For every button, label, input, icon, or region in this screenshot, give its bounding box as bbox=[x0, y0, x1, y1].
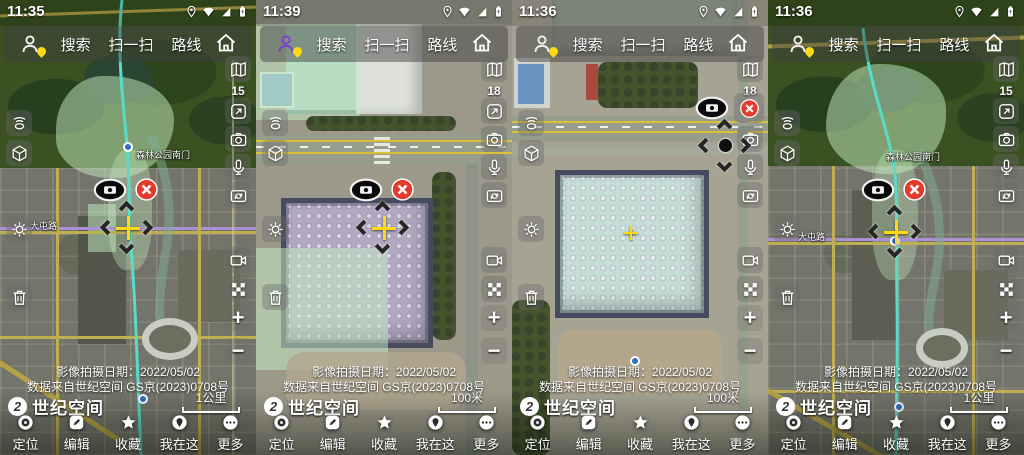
camera-oval-icon bbox=[694, 95, 730, 121]
road-label: 大屯路 bbox=[798, 230, 825, 243]
mic-icon bbox=[997, 158, 1016, 177]
zoom-in-button[interactable]: + bbox=[993, 305, 1019, 331]
battery-icon bbox=[236, 5, 249, 18]
route-button[interactable]: 路线 bbox=[159, 34, 214, 55]
camera-switch-icon bbox=[229, 186, 248, 205]
four-screenshot-strip: 森林公园南门 大屯路 11:35 搜索 扫一扫 路线 15 bbox=[0, 0, 1024, 455]
locate-target-icon bbox=[528, 413, 547, 432]
camera-switch-icon bbox=[741, 186, 760, 205]
nav-here[interactable]: 我在这 bbox=[410, 411, 461, 455]
zoom-level-indicator: 15 bbox=[225, 84, 251, 98]
mic-icon bbox=[229, 158, 248, 177]
screenshot-panel-2: 11:39 搜索 扫一扫 路线 18 + − bbox=[256, 0, 512, 455]
screenshot-panel-3: 11:36 搜索 扫一扫 路线 18 + − bbox=[512, 0, 768, 455]
close-x-icon bbox=[902, 177, 927, 202]
checker-grid-icon bbox=[485, 280, 504, 299]
battery-icon bbox=[1004, 5, 1017, 18]
settings-gear-icon bbox=[10, 220, 29, 239]
search-bar: 搜索 扫一扫 路线 bbox=[260, 26, 508, 62]
view-3d-button[interactable] bbox=[262, 140, 288, 166]
zoom-out-button[interactable]: − bbox=[993, 338, 1019, 364]
status-bar: 11:35 bbox=[0, 0, 256, 22]
close-x-icon bbox=[739, 98, 760, 119]
scan-button[interactable]: 扫一扫 bbox=[871, 34, 926, 55]
search-bar: 搜索 扫一扫 路线 bbox=[516, 26, 764, 62]
close-x-icon bbox=[134, 177, 159, 202]
location-pin-icon bbox=[185, 5, 198, 18]
fullscreen-button[interactable] bbox=[993, 98, 1019, 124]
scale-label: 100米 bbox=[451, 391, 483, 405]
location-pin-icon bbox=[953, 5, 966, 18]
search-button[interactable]: 搜索 bbox=[816, 34, 871, 55]
nav-edit[interactable]: 编辑 bbox=[51, 411, 102, 455]
pencil-icon bbox=[67, 413, 86, 432]
camera-switch-button[interactable] bbox=[737, 182, 763, 208]
map-layers-icon bbox=[741, 60, 760, 79]
camera-switch-icon bbox=[485, 186, 504, 205]
map-layers-button[interactable] bbox=[993, 56, 1019, 82]
zoom-in-button[interactable]: + bbox=[737, 305, 763, 331]
location-pin-icon bbox=[170, 413, 189, 432]
close-x-icon bbox=[390, 177, 415, 202]
capture-date: 影像拍摄日期：2022/05/02 bbox=[768, 365, 1024, 380]
nav-edit[interactable]: 编辑 bbox=[819, 411, 870, 455]
map-layers-button[interactable] bbox=[737, 56, 763, 82]
settings-button[interactable] bbox=[774, 216, 800, 242]
camera-oval-icon bbox=[860, 177, 896, 203]
hotspot-button[interactable] bbox=[774, 110, 800, 136]
video-camera-icon bbox=[997, 251, 1016, 270]
checker-grid-icon bbox=[741, 280, 760, 299]
location-pin-icon bbox=[441, 5, 454, 18]
settings-button[interactable] bbox=[518, 216, 544, 242]
clock: 11:39 bbox=[263, 3, 301, 20]
camera-button[interactable] bbox=[225, 126, 251, 152]
signal-icon bbox=[475, 5, 488, 18]
view-3d-button[interactable] bbox=[774, 140, 800, 166]
delete-button[interactable] bbox=[262, 284, 288, 310]
video-button[interactable] bbox=[737, 247, 763, 273]
locate-target-icon bbox=[16, 413, 35, 432]
mic-button[interactable] bbox=[737, 154, 763, 180]
clock: 11:35 bbox=[7, 3, 45, 20]
search-button[interactable]: 搜索 bbox=[304, 34, 359, 55]
signal-icon bbox=[731, 5, 744, 18]
route-button[interactable]: 路线 bbox=[671, 34, 726, 55]
yellow-crosshair bbox=[884, 220, 908, 244]
video-button[interactable] bbox=[225, 247, 251, 273]
map-scale: 100米 bbox=[694, 389, 752, 413]
settings-gear-icon bbox=[266, 220, 285, 239]
fullscreen-icon bbox=[229, 102, 248, 121]
metro-station-dot bbox=[123, 142, 133, 152]
scan-button[interactable]: 扫一扫 bbox=[103, 34, 158, 55]
camera-switch-button[interactable] bbox=[225, 182, 251, 208]
zoom-out-button[interactable]: − bbox=[737, 338, 763, 364]
zoom-in-button[interactable]: + bbox=[481, 305, 507, 331]
scale-label: 100米 bbox=[707, 391, 739, 405]
mic-button[interactable] bbox=[225, 154, 251, 180]
nav-favorite[interactable]: 收藏 bbox=[102, 411, 153, 455]
home-icon[interactable] bbox=[726, 31, 752, 57]
location-pin-icon bbox=[938, 413, 957, 432]
yellow-crosshair bbox=[372, 216, 396, 240]
map-layers-icon bbox=[229, 60, 248, 79]
route-button[interactable]: 路线 bbox=[927, 34, 982, 55]
camera-oval-icon bbox=[92, 177, 128, 203]
scale-label: 1公里 bbox=[196, 391, 227, 405]
nav-here[interactable]: 我在这 bbox=[922, 411, 973, 455]
wifi-icon bbox=[202, 5, 215, 18]
clock: 11:36 bbox=[775, 3, 813, 20]
settings-button[interactable] bbox=[262, 216, 288, 242]
hotspot-button[interactable] bbox=[6, 110, 32, 136]
battery-icon bbox=[748, 5, 761, 18]
nav-edit[interactable]: 编辑 bbox=[307, 411, 358, 455]
more-dots-icon bbox=[733, 413, 752, 432]
cube-3d-icon bbox=[10, 144, 29, 163]
mic-button[interactable] bbox=[481, 154, 507, 180]
nav-locate[interactable]: 定位 bbox=[0, 411, 51, 455]
pan-center-dot bbox=[719, 139, 732, 152]
map-center-mini-crosshair bbox=[624, 226, 638, 240]
search-button[interactable]: 搜索 bbox=[560, 34, 615, 55]
star-icon bbox=[887, 413, 906, 432]
pencil-icon bbox=[579, 413, 598, 432]
camera-switch-button[interactable] bbox=[481, 182, 507, 208]
close-button[interactable] bbox=[390, 177, 415, 202]
video-button[interactable] bbox=[993, 247, 1019, 273]
station-label: 森林公园南门 bbox=[136, 148, 190, 161]
profile-icon[interactable] bbox=[274, 32, 304, 56]
mic-icon bbox=[741, 158, 760, 177]
wifi-icon bbox=[970, 5, 983, 18]
pencil-icon bbox=[835, 413, 854, 432]
cube-3d-icon bbox=[778, 144, 797, 163]
camera-switch-button[interactable] bbox=[993, 182, 1019, 208]
hotspot-icon bbox=[10, 114, 29, 133]
location-pin-icon bbox=[697, 5, 710, 18]
capture-date: 影像拍摄日期：2022/05/02 bbox=[512, 365, 768, 380]
grid-button[interactable] bbox=[225, 276, 251, 302]
yellow-crosshair bbox=[116, 216, 140, 240]
camera-icon bbox=[229, 130, 248, 149]
battery-icon bbox=[492, 5, 505, 18]
signal-icon bbox=[987, 5, 1000, 18]
camera-icon bbox=[485, 130, 504, 149]
hotspot-button[interactable] bbox=[518, 110, 544, 136]
map-layers-icon bbox=[997, 60, 1016, 79]
camera-marker-button[interactable] bbox=[348, 177, 384, 203]
view-3d-button[interactable] bbox=[518, 140, 544, 166]
more-dots-icon bbox=[477, 413, 496, 432]
bottom-nav: 定位 编辑 收藏 我在这 更多 bbox=[768, 411, 1024, 455]
nav-favorite[interactable]: 收藏 bbox=[358, 411, 409, 455]
video-camera-icon bbox=[485, 251, 504, 270]
status-bar: 11:36 bbox=[512, 0, 768, 22]
zoom-out-button[interactable]: − bbox=[481, 338, 507, 364]
camera-oval-icon bbox=[348, 177, 384, 203]
settings-gear-icon bbox=[778, 220, 797, 239]
nav-more[interactable]: 更多 bbox=[973, 411, 1024, 455]
camera-button[interactable] bbox=[993, 126, 1019, 152]
stadium bbox=[916, 328, 968, 368]
nav-here[interactable]: 我在这 bbox=[666, 411, 717, 455]
water-cube-building bbox=[555, 170, 709, 318]
hotspot-icon bbox=[266, 114, 285, 133]
status-bar: 11:36 bbox=[768, 0, 1024, 22]
trash-icon bbox=[266, 288, 285, 307]
route-button[interactable]: 路线 bbox=[415, 34, 470, 55]
home-icon[interactable] bbox=[214, 31, 240, 57]
wifi-icon bbox=[714, 5, 727, 18]
hotspot-icon bbox=[522, 114, 541, 133]
scan-button[interactable]: 扫一扫 bbox=[615, 34, 670, 55]
delete-button[interactable] bbox=[774, 284, 800, 310]
star-icon bbox=[631, 413, 650, 432]
star-icon bbox=[119, 413, 138, 432]
close-button[interactable] bbox=[902, 177, 927, 202]
grid-button[interactable] bbox=[737, 276, 763, 302]
map-layers-button[interactable] bbox=[225, 56, 251, 82]
clock: 11:36 bbox=[519, 3, 557, 20]
camera-icon bbox=[997, 130, 1016, 149]
fullscreen-button[interactable] bbox=[481, 98, 507, 124]
close-button[interactable] bbox=[134, 177, 159, 202]
video-camera-icon bbox=[229, 251, 248, 270]
mic-icon bbox=[485, 158, 504, 177]
star-icon bbox=[375, 413, 394, 432]
profile-icon[interactable] bbox=[530, 32, 560, 56]
nav-edit[interactable]: 编辑 bbox=[563, 411, 614, 455]
scale-label: 1公里 bbox=[964, 391, 995, 405]
trash-icon bbox=[778, 288, 797, 307]
fullscreen-icon bbox=[485, 102, 504, 121]
camera-marker-button[interactable] bbox=[92, 177, 128, 203]
video-camera-icon bbox=[741, 251, 760, 270]
trash-icon bbox=[10, 288, 29, 307]
camera-marker-button[interactable] bbox=[694, 95, 730, 121]
nav-locate[interactable]: 定位 bbox=[768, 411, 819, 455]
camera-button[interactable] bbox=[481, 126, 507, 152]
zoom-out-button[interactable]: − bbox=[225, 338, 251, 364]
more-dots-icon bbox=[221, 413, 240, 432]
bottom-nav: 定位 编辑 收藏 我在这 更多 bbox=[256, 411, 512, 455]
nav-favorite[interactable]: 收藏 bbox=[614, 411, 665, 455]
settings-button[interactable] bbox=[6, 216, 32, 242]
zoom-level-indicator: 18 bbox=[481, 84, 507, 98]
nav-more[interactable]: 更多 bbox=[205, 411, 256, 455]
profile-icon[interactable] bbox=[18, 32, 48, 56]
map-scale: 1公里 bbox=[182, 389, 240, 413]
fullscreen-button[interactable] bbox=[225, 98, 251, 124]
road-label: 大屯路 bbox=[30, 219, 57, 232]
camera-marker-button[interactable] bbox=[860, 177, 896, 203]
fullscreen-icon bbox=[997, 102, 1016, 121]
nav-favorite[interactable]: 收藏 bbox=[870, 411, 921, 455]
locate-target-icon bbox=[784, 413, 803, 432]
zoom-in-button[interactable]: + bbox=[225, 305, 251, 331]
home-icon[interactable] bbox=[982, 31, 1008, 57]
location-pin-icon bbox=[426, 413, 445, 432]
location-pin-icon bbox=[682, 413, 701, 432]
nav-locate[interactable]: 定位 bbox=[512, 411, 563, 455]
bottom-nav: 定位 编辑 收藏 我在这 更多 bbox=[512, 411, 768, 455]
search-bar: 搜索 扫一扫 路线 bbox=[772, 26, 1020, 62]
wifi-icon bbox=[458, 5, 471, 18]
stadium bbox=[142, 318, 198, 360]
nav-here[interactable]: 我在这 bbox=[154, 411, 205, 455]
more-dots-icon bbox=[989, 413, 1008, 432]
screenshot-panel-4: 森林公园南门 大屯路 11:36 搜索 扫一扫 路线 15 bbox=[768, 0, 1024, 455]
nav-locate[interactable]: 定位 bbox=[256, 411, 307, 455]
map-layers-icon bbox=[485, 60, 504, 79]
settings-gear-icon bbox=[522, 220, 541, 239]
map-scale: 1公里 bbox=[950, 389, 1008, 413]
nav-more[interactable]: 更多 bbox=[461, 411, 512, 455]
video-button[interactable] bbox=[481, 247, 507, 273]
search-button[interactable]: 搜索 bbox=[48, 34, 103, 55]
delete-button[interactable] bbox=[6, 284, 32, 310]
close-button[interactable] bbox=[734, 93, 764, 123]
camera-switch-icon bbox=[997, 186, 1016, 205]
mic-button[interactable] bbox=[993, 154, 1019, 180]
pencil-icon bbox=[323, 413, 342, 432]
grid-button[interactable] bbox=[481, 276, 507, 302]
cube-3d-icon bbox=[266, 144, 285, 163]
profile-icon[interactable] bbox=[786, 32, 816, 56]
search-bar: 搜索 扫一扫 路线 bbox=[4, 26, 252, 62]
capture-date: 影像拍摄日期：2022/05/02 bbox=[256, 365, 512, 380]
status-bar: 11:39 bbox=[256, 0, 512, 22]
home-icon[interactable] bbox=[470, 31, 496, 57]
map-layers-button[interactable] bbox=[481, 56, 507, 82]
locate-target-icon bbox=[272, 413, 291, 432]
capture-date: 影像拍摄日期：2022/05/02 bbox=[0, 365, 256, 380]
scan-button[interactable]: 扫一扫 bbox=[359, 34, 414, 55]
station-label: 森林公园南门 bbox=[886, 150, 940, 163]
hotspot-button[interactable] bbox=[262, 110, 288, 136]
map-scale: 100米 bbox=[438, 389, 496, 413]
hotspot-icon bbox=[778, 114, 797, 133]
delete-button[interactable] bbox=[518, 284, 544, 310]
zoom-level-indicator: 15 bbox=[993, 84, 1019, 98]
view-3d-button[interactable] bbox=[6, 140, 32, 166]
bottom-nav: 定位 编辑 收藏 我在这 更多 bbox=[0, 411, 256, 455]
checker-grid-icon bbox=[997, 280, 1016, 299]
checker-grid-icon bbox=[229, 280, 248, 299]
grid-button[interactable] bbox=[993, 276, 1019, 302]
trash-icon bbox=[522, 288, 541, 307]
signal-icon bbox=[219, 5, 232, 18]
cube-3d-icon bbox=[522, 144, 541, 163]
screenshot-panel-1: 森林公园南门 大屯路 11:35 搜索 扫一扫 路线 15 bbox=[0, 0, 256, 455]
nav-more[interactable]: 更多 bbox=[717, 411, 768, 455]
